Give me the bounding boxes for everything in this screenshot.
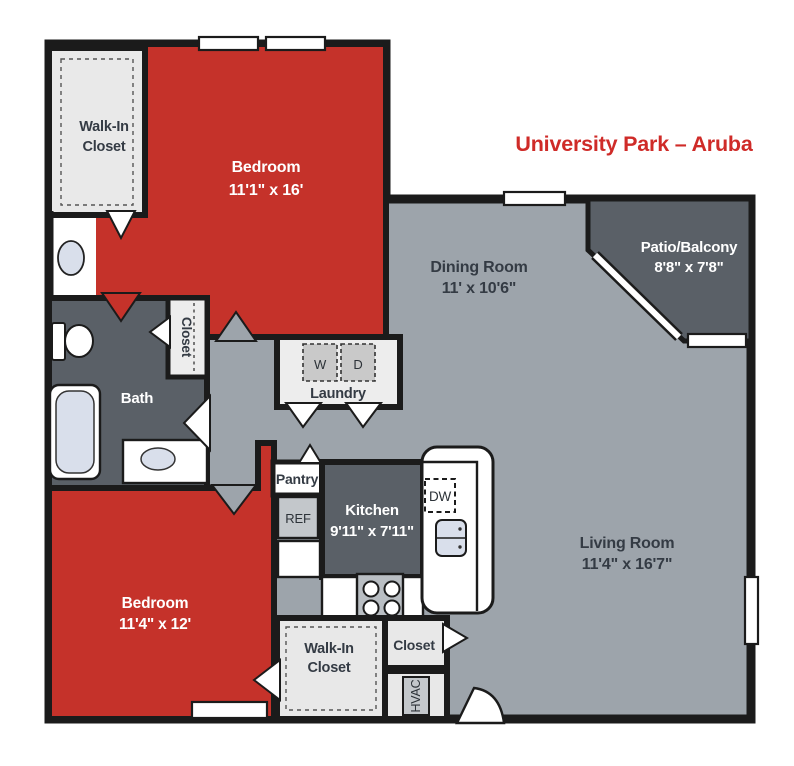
walk-in-closet-1-label-line2: Closet	[82, 139, 125, 155]
kitchen-label: Kitchen	[345, 502, 399, 519]
dining-room-label: Dining Room	[430, 259, 527, 276]
bath-label: Bath	[121, 390, 154, 407]
walk-in-closet-2-label-line1: Walk-In	[304, 641, 354, 657]
floor-plan-canvas: University Park – Aruba	[0, 0, 794, 766]
hall-closet-label: Closet	[179, 317, 194, 358]
stove-burner	[364, 582, 379, 597]
stove-burner	[385, 601, 400, 616]
patio-balcony-label: Patio/Balcony	[641, 239, 738, 256]
patio-window	[688, 334, 746, 347]
walk-in-closet-1-label-line1: Walk-In	[79, 119, 129, 135]
vanity-sink-fixture	[58, 241, 84, 275]
dryer-label: D	[353, 357, 362, 372]
laundry-label: Laundry	[310, 386, 366, 402]
bedroom-1-dims: 11'1" x 16'	[229, 182, 303, 199]
pantry-label: Pantry	[276, 471, 319, 487]
kitchen-dims: 9'11" x 7'11"	[330, 523, 414, 540]
bedroom-2-label: Bedroom	[122, 595, 189, 612]
living-closet-label: Closet	[393, 637, 435, 653]
dining-window	[504, 192, 565, 205]
washer-label: W	[314, 357, 327, 372]
kitchen-room	[322, 462, 423, 577]
refrigerator-label: REF	[285, 511, 311, 526]
bedroom-1-window-right	[266, 37, 325, 50]
patio-balcony-dims: 8'8" x 7'8"	[654, 259, 723, 276]
living-room-label: Living Room	[580, 535, 675, 552]
dishwasher-label: DW	[429, 489, 452, 504]
bedroom-2-dims: 11'4" x 12'	[119, 616, 191, 633]
bedroom-2-window	[192, 702, 267, 718]
living-room-window	[745, 577, 758, 644]
sink-drain	[458, 527, 461, 530]
floor-plan-page: University Park – Aruba	[0, 0, 794, 766]
kitchen-counter-left	[322, 577, 358, 617]
bath-sink-fixture	[141, 448, 175, 470]
sink-drain	[458, 545, 461, 548]
kitchen-counter-right	[402, 577, 423, 617]
stove-burner	[385, 582, 400, 597]
bedroom-1-window-left	[199, 37, 258, 50]
bathtub-basin	[56, 391, 94, 473]
stove-burner	[364, 601, 379, 616]
hvac-label: HVAC	[409, 679, 423, 712]
walk-in-closet-2-label-line2: Closet	[307, 660, 350, 676]
living-room-dims: 11'4" x 16'7"	[582, 556, 672, 573]
plan-title: University Park – Aruba	[515, 132, 753, 156]
dining-room-dims: 11' x 10'6"	[442, 280, 516, 297]
bedroom-1-label: Bedroom	[232, 159, 301, 176]
toilet-bowl-fixture	[65, 325, 93, 357]
kitchen-cabinet	[278, 541, 320, 577]
toilet-tank-fixture	[52, 323, 65, 360]
